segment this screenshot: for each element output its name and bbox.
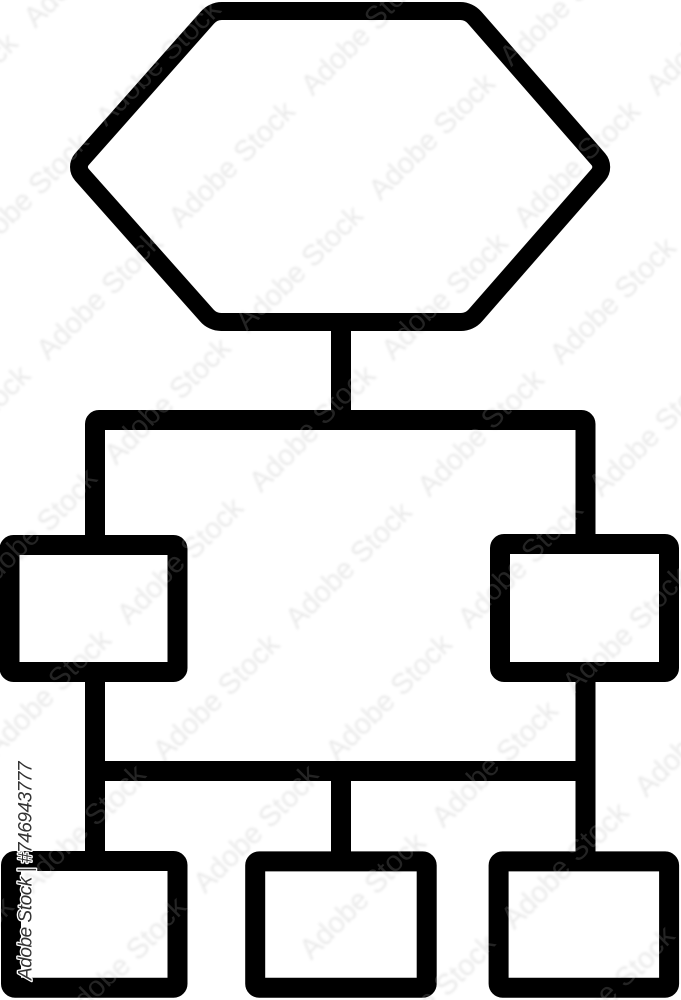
svg-text:Adobe Stock | #746943777: Adobe Stock | #746943777 [15,760,36,981]
